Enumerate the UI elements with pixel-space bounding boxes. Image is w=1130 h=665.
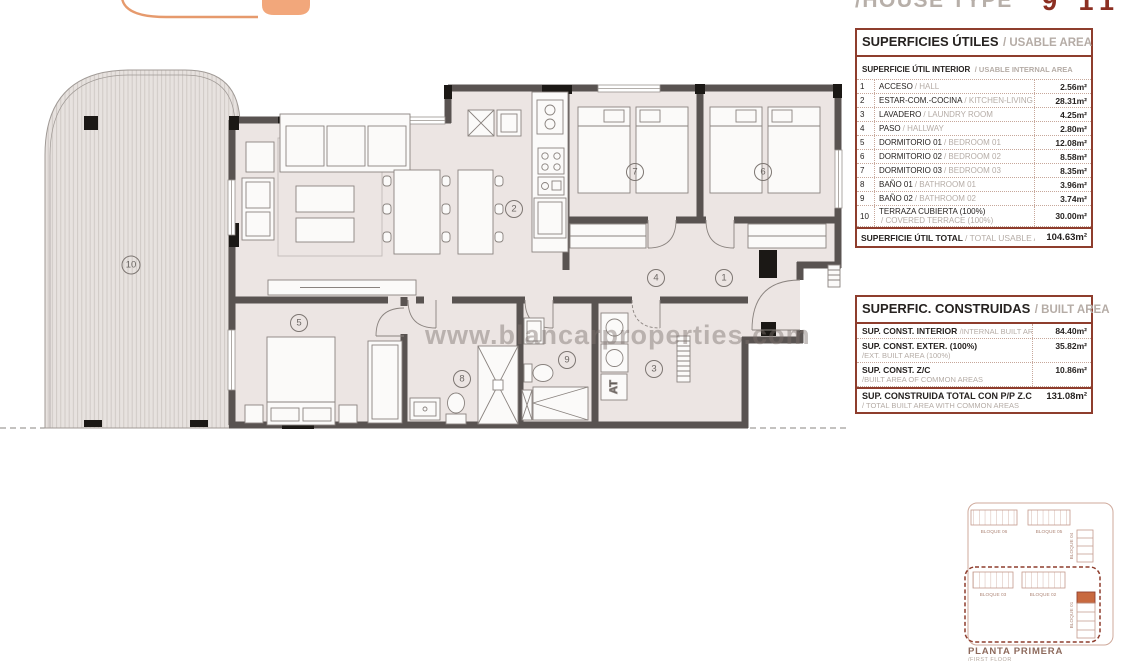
kitchen-sink	[537, 100, 563, 134]
floorplan-page: /HOUSE TYPE 9 11	[0, 0, 1130, 665]
usable-table-subtitle: SUPERFICIE ÚTIL INTERIOR / USABLE INTERN…	[857, 57, 1091, 80]
pillow	[640, 110, 660, 122]
coffee-table	[296, 218, 354, 242]
built-table-title: SUPERFIC. CONSTRUIDAS / BUILT AREA	[857, 297, 1091, 324]
floor-plan: AT 1 2 3 4 5 6 7 8 9 10	[0, 30, 850, 462]
keyplan-caption-en: /FIRST FLOOR	[968, 657, 1012, 663]
logo-mark	[262, 0, 310, 15]
bedroom-01-furniture	[245, 337, 402, 425]
block-04-label: BLOQUE 04	[1069, 532, 1075, 559]
block-06-label: BLOQUE 06	[981, 529, 1008, 535]
svg-text:7: 7	[632, 167, 637, 178]
site-key-plan: BLOQUE 06 BLOQUE 05 BLOQUE 04 BLOQUE 03 …	[950, 495, 1128, 665]
house-type-code: 9 11	[1042, 0, 1121, 17]
ac-unit	[828, 265, 840, 287]
usable-area-table: SUPERFICIES ÚTILES / USABLE AREA SUPERFI…	[855, 28, 1093, 248]
hall-wardrobe	[570, 224, 646, 248]
keyplan-blocks: BLOQUE 06 BLOQUE 05 BLOQUE 04 BLOQUE 03 …	[965, 510, 1100, 642]
svg-text:2: 2	[511, 204, 516, 215]
nightstand	[339, 405, 357, 423]
svg-text:4: 4	[653, 273, 658, 284]
house-type-label: /HOUSE TYPE	[855, 0, 1013, 13]
block-02-label: BLOQUE 02	[1030, 592, 1057, 598]
logo-swoosh	[122, 0, 258, 17]
area-row: 9BAÑO 02/ BATHROOM 023.74m²	[857, 192, 1091, 206]
armchair	[242, 178, 274, 240]
built-row: SUP. CONST. EXTER. (100%)/EXT. BUILT ARE…	[857, 339, 1091, 363]
area-row: 8BAÑO 01/ BATHROOM 013.96m²	[857, 178, 1091, 192]
block-03-label: BLOQUE 03	[980, 592, 1007, 598]
built-area-table: SUPERFIC. CONSTRUIDAS / BUILT AREA SUP. …	[855, 295, 1093, 414]
washbasin	[410, 398, 440, 420]
svg-text:9: 9	[564, 355, 569, 366]
kitchen-cabinet	[534, 198, 566, 238]
entrance-closet	[748, 224, 826, 248]
svg-text:10: 10	[126, 260, 137, 271]
toilet	[524, 364, 553, 382]
terrace-column	[84, 116, 98, 130]
terrace-column	[190, 420, 208, 427]
bathtub	[522, 387, 588, 420]
svg-text:5: 5	[296, 318, 301, 329]
sofa	[280, 114, 410, 172]
tv-sideboard	[268, 280, 416, 295]
dining-table	[458, 170, 493, 254]
built-total-row: SUP. CONSTRUIDA TOTAL CON P/P Z.C/ TOTAL…	[857, 387, 1091, 412]
at-label: AT	[608, 380, 620, 394]
toilet	[446, 393, 466, 424]
svg-text:6: 6	[760, 167, 765, 178]
pillow	[736, 110, 756, 122]
block-01-label: BLOQUE 01	[1069, 601, 1075, 628]
shower	[478, 346, 518, 424]
pillow	[303, 408, 331, 421]
svg-text:8: 8	[459, 374, 464, 385]
usable-table-title: SUPERFICIES ÚTILES / USABLE AREA	[857, 30, 1091, 57]
pillow	[772, 110, 792, 122]
agency-logo	[118, 0, 318, 26]
svg-text:1: 1	[721, 273, 726, 284]
usable-total-row: SUPERFICIE ÚTIL TOTAL/ TOTAL USABLE AREA…	[857, 227, 1091, 246]
area-row: 2ESTAR-COM.-COCINA/ KITCHEN-LIVING28.31m…	[857, 94, 1091, 108]
dining-table	[394, 170, 440, 254]
pillow	[604, 110, 624, 122]
area-row: 7DORMITORIO 03/ BEDROOM 038.35m²	[857, 164, 1091, 178]
highlighted-unit	[1077, 592, 1095, 603]
watermark: www.blancarproperties.com	[425, 320, 811, 351]
side-table	[246, 142, 274, 172]
water-heater: AT	[601, 374, 627, 400]
hob	[538, 148, 564, 174]
area-row: 3LAVADERO/ LAUNDRY ROOM4.25m²	[857, 108, 1091, 122]
nightstand	[245, 405, 263, 423]
block-05-label: BLOQUE 05	[1036, 529, 1063, 535]
area-row: 1ACCESO/ HALL2.56m²	[857, 80, 1091, 94]
terrace-column	[84, 420, 102, 427]
area-row: 10TERRAZA CUBIERTA (100%)/ COVERED TERRA…	[857, 206, 1091, 227]
built-row: SUP. CONST. Z/C/BUILT AREA OF COMMON ARE…	[857, 363, 1091, 387]
area-row: 4PASO/ HALLWAY2.80m²	[857, 122, 1091, 136]
area-row: 5DORMITORIO 01/ BEDROOM 0112.08m²	[857, 136, 1091, 150]
oven	[538, 177, 564, 195]
keyplan-caption: PLANTA PRIMERA	[968, 646, 1063, 657]
terrace	[45, 70, 240, 428]
svg-text:3: 3	[651, 364, 656, 375]
pillow	[271, 408, 299, 421]
area-row: 6DORMITORIO 02/ BEDROOM 028.58m²	[857, 150, 1091, 164]
coffee-table	[296, 186, 354, 212]
wardrobe	[368, 341, 402, 423]
built-row: SUP. CONST. INTERIOR /INTERNAL BUILT ARE…	[857, 324, 1091, 339]
